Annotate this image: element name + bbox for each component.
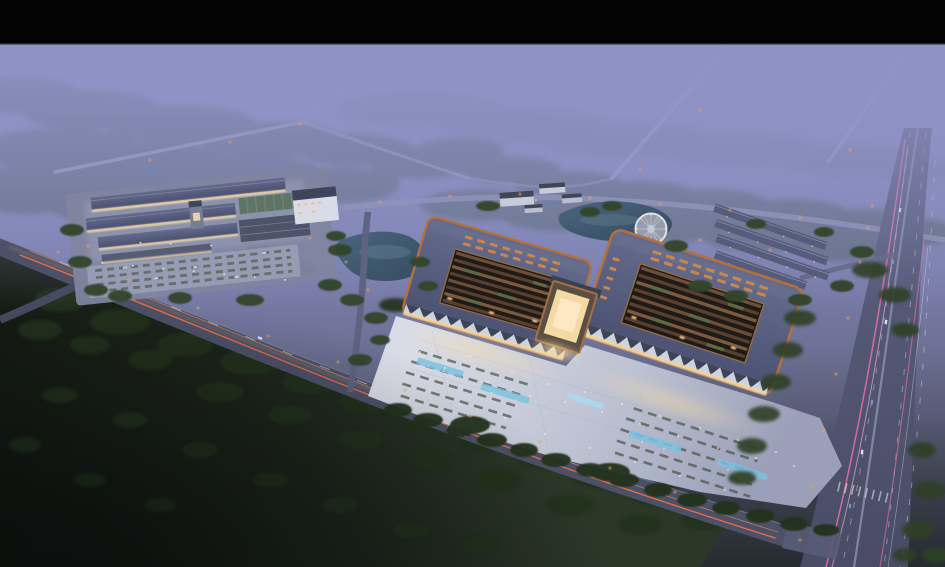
plaza-light <box>487 381 489 383</box>
street-lamp <box>799 217 802 220</box>
plaza-light <box>717 447 719 449</box>
tree <box>813 524 839 536</box>
tree <box>318 279 342 291</box>
street-lamp <box>823 429 826 432</box>
tree <box>728 471 756 485</box>
tree <box>788 294 812 306</box>
street-lamp <box>871 205 874 208</box>
street-lamp <box>609 467 612 470</box>
tree <box>737 438 767 454</box>
street-lamp <box>699 109 702 112</box>
plaza-light <box>793 465 795 467</box>
tree <box>850 246 874 258</box>
street-lamp <box>729 209 732 212</box>
street-lamp <box>87 245 90 248</box>
tree <box>879 287 911 303</box>
plaza-light <box>444 367 446 369</box>
letterbox <box>0 0 945 45</box>
plaza-light <box>547 383 549 385</box>
tree <box>830 280 854 292</box>
street-lamp <box>367 289 370 292</box>
tree <box>410 257 430 267</box>
street-lamp <box>149 159 152 162</box>
tree <box>340 294 364 306</box>
tree <box>902 521 934 539</box>
street-lamp <box>835 373 838 376</box>
tree <box>418 281 438 291</box>
plaza-light <box>564 401 566 403</box>
plaza-light <box>419 351 421 353</box>
screenshot-frame <box>0 0 945 567</box>
tree <box>784 310 816 326</box>
plaza-light <box>699 427 701 429</box>
tree <box>891 323 919 337</box>
street-lamp <box>699 239 702 242</box>
tree <box>68 256 92 268</box>
tree <box>712 501 740 515</box>
tree <box>326 231 346 241</box>
tree <box>476 201 500 211</box>
tree <box>328 244 352 256</box>
tree <box>677 493 707 507</box>
market-white-building <box>292 186 339 224</box>
tree <box>724 290 748 302</box>
plaza-light <box>679 475 681 477</box>
street-lamp <box>799 539 802 542</box>
street-lamp <box>589 197 592 200</box>
plaza-light <box>529 395 531 397</box>
street-lamp <box>847 317 850 320</box>
tree <box>644 483 672 497</box>
tree <box>364 312 388 324</box>
street-lamp <box>674 491 677 494</box>
plaza-light <box>775 451 777 453</box>
street-lamp <box>309 237 312 240</box>
plaza-light <box>677 435 679 437</box>
plaza-light <box>621 403 623 405</box>
street-lamp <box>519 193 522 196</box>
street-lamp <box>867 227 870 230</box>
tree <box>893 548 917 562</box>
tree <box>748 406 780 422</box>
street-lamp <box>769 249 772 252</box>
plaza-light <box>634 461 636 463</box>
tree <box>908 442 936 458</box>
plaza-light <box>737 439 739 441</box>
street-lamp <box>639 169 642 172</box>
tree <box>580 207 600 217</box>
tree <box>590 463 630 481</box>
plaza-light <box>589 447 591 449</box>
plaza-light <box>544 433 546 435</box>
plaza-light <box>659 415 661 417</box>
tree <box>84 284 108 296</box>
aerial-rendering <box>0 0 945 567</box>
street-lamp <box>57 251 60 254</box>
street-lamp <box>379 201 382 204</box>
street-lamp <box>449 195 452 198</box>
tree <box>60 224 84 236</box>
street-lamp <box>127 279 130 282</box>
street-lamp <box>859 261 862 264</box>
tree <box>852 262 888 278</box>
plaza-light <box>755 457 757 459</box>
street-lamp <box>659 203 662 206</box>
tree <box>236 294 264 306</box>
street-lamp <box>345 261 348 264</box>
tree <box>746 219 766 229</box>
tree <box>602 201 622 211</box>
street-lamp <box>811 485 814 488</box>
plaza-light <box>584 391 586 393</box>
tree <box>814 227 834 237</box>
street-lamp <box>299 123 302 126</box>
tree <box>773 342 803 358</box>
street-lamp <box>849 149 852 152</box>
plaza-light <box>639 423 641 425</box>
tree <box>761 374 791 390</box>
tree <box>914 481 945 499</box>
tree <box>618 515 662 535</box>
tree <box>746 509 774 523</box>
tree <box>664 240 688 252</box>
street-lamp <box>229 141 232 144</box>
tree <box>780 517 808 531</box>
plaza-light <box>724 489 726 491</box>
plaza-light <box>601 411 603 413</box>
tree <box>688 280 712 292</box>
